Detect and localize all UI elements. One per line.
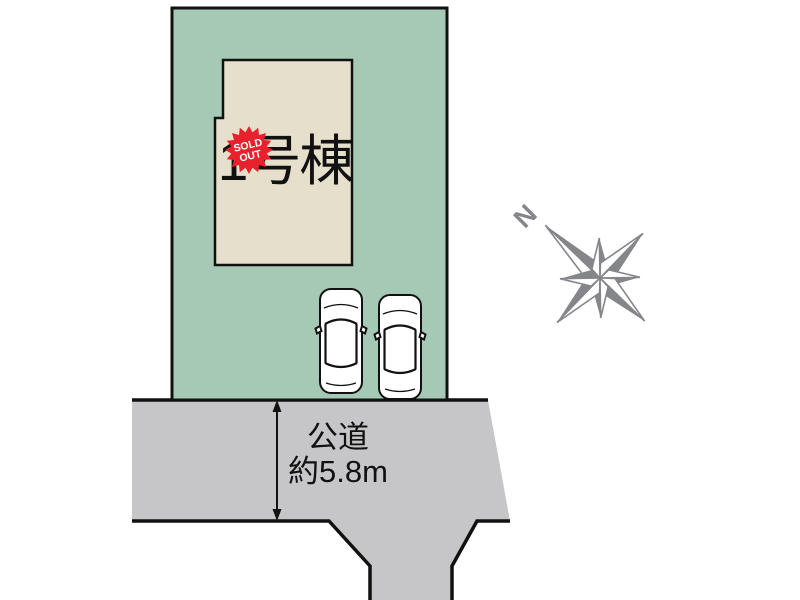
- car-1-icon: [316, 289, 367, 393]
- road-width-label: 公道 約5.8m: [268, 421, 408, 488]
- site-plan: N 1号棟 SOLD OUT 公道 約5.8m: [0, 0, 800, 600]
- site-plan-drawing: N: [0, 0, 800, 600]
- road-border-bottom-left: [132, 521, 370, 600]
- road-label-line2: 約5.8m: [268, 455, 408, 488]
- sold-out-badge: SOLD OUT: [223, 124, 275, 176]
- car-2-icon: [375, 295, 426, 399]
- road-label-line1: 公道: [268, 421, 408, 455]
- compass-north-label: N: [508, 199, 543, 234]
